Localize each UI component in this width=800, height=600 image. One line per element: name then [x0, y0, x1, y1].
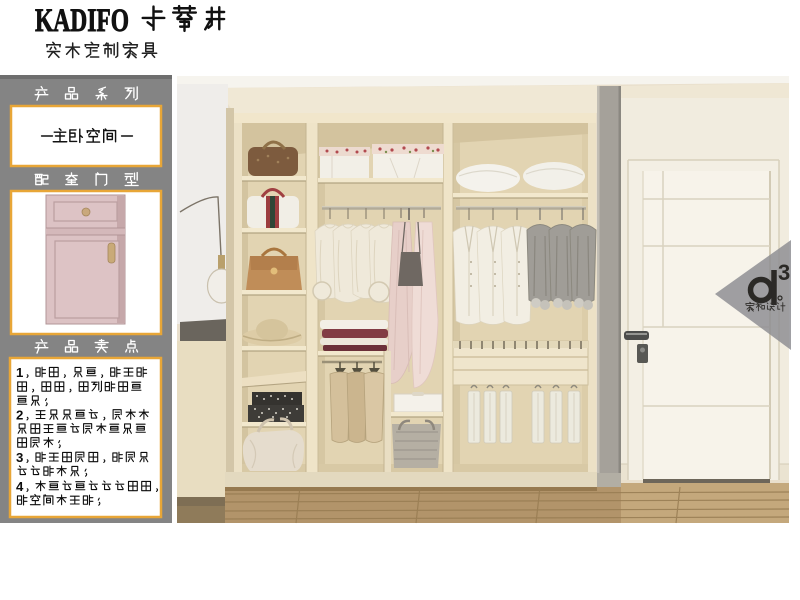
- svg-text:2: 2: [16, 408, 23, 423]
- svg-text:4: 4: [16, 479, 24, 494]
- svg-text:3: 3: [16, 450, 23, 465]
- svg-text:1: 1: [16, 365, 23, 380]
- svg-text:KADIFO: KADIFO: [35, 3, 129, 39]
- svg-text:3: 3: [778, 260, 790, 285]
